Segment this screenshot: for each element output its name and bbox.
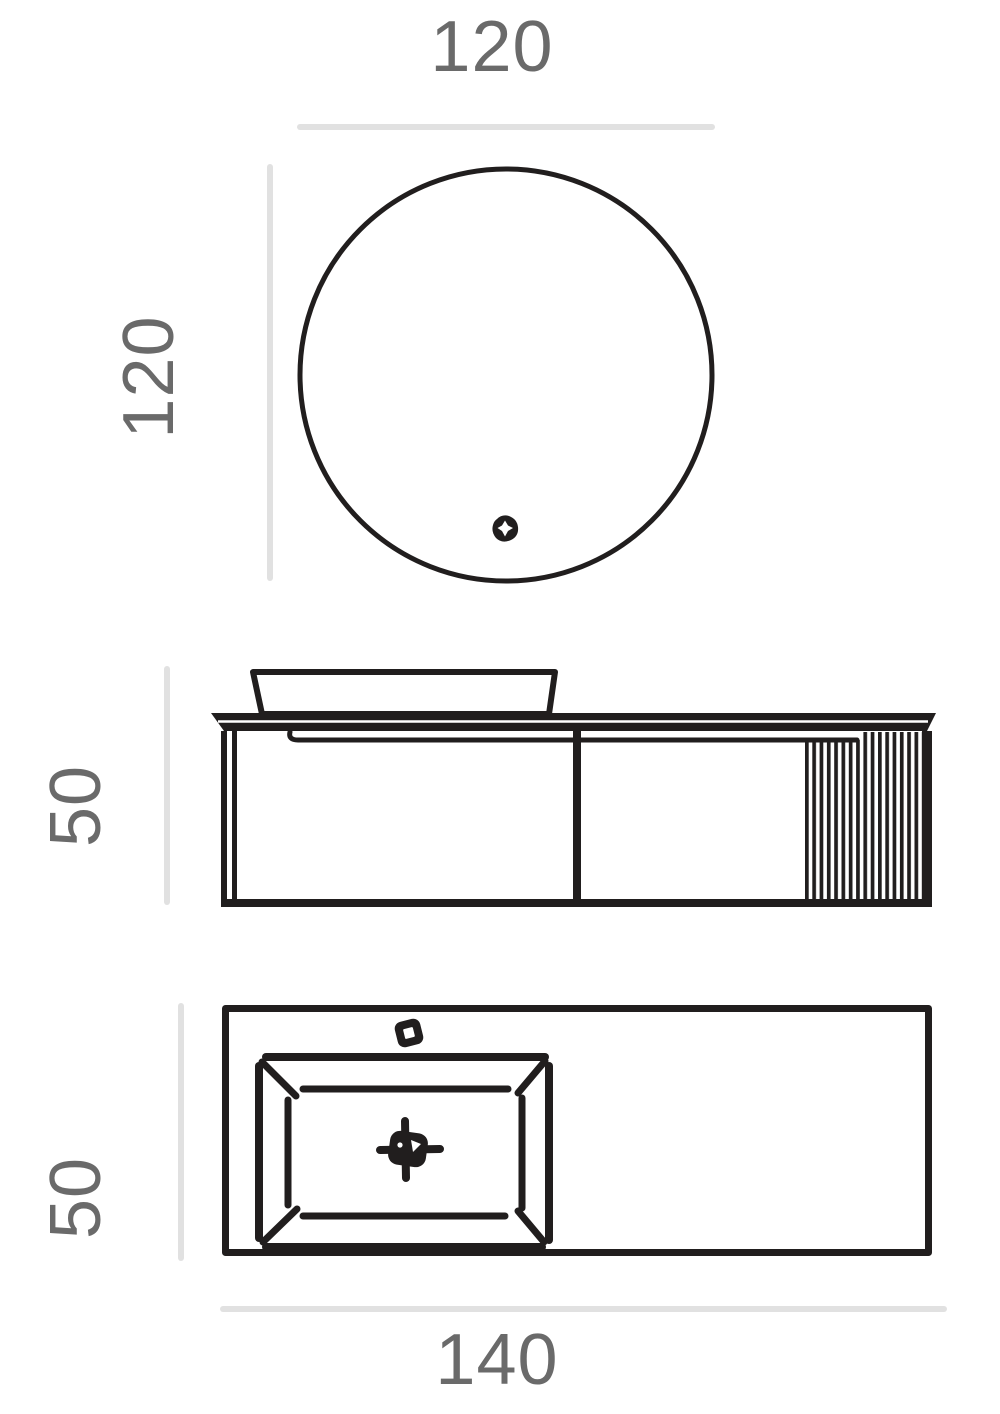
drawer-divider [573,731,581,899]
mirror-width-label: 120 [430,7,553,87]
mirror-height-label: 120 [109,315,189,438]
countertop-plan-view: 50 140 [36,1006,944,1400]
cabinet-front-view: 50 [36,669,936,907]
drawing-svg: 120 120 50 50 140 [0,0,1000,1414]
countertop-depth-label: 50 [36,1157,116,1239]
cabinet-left-inner-edge [232,731,237,899]
slatted-door-panel [805,732,924,899]
mirror-front-view: 120 120 [109,7,712,581]
countertop-width-label: 140 [435,1320,558,1400]
cabinet-height-label: 50 [36,765,116,847]
technical-drawing-canvas: 120 120 50 50 140 [0,0,1000,1414]
vessel-basin-front [253,672,555,714]
cabinet-bottom-edge [221,899,932,907]
cabinet-left-outer-edge [221,731,227,906]
cabinet-right-edge [922,731,932,906]
